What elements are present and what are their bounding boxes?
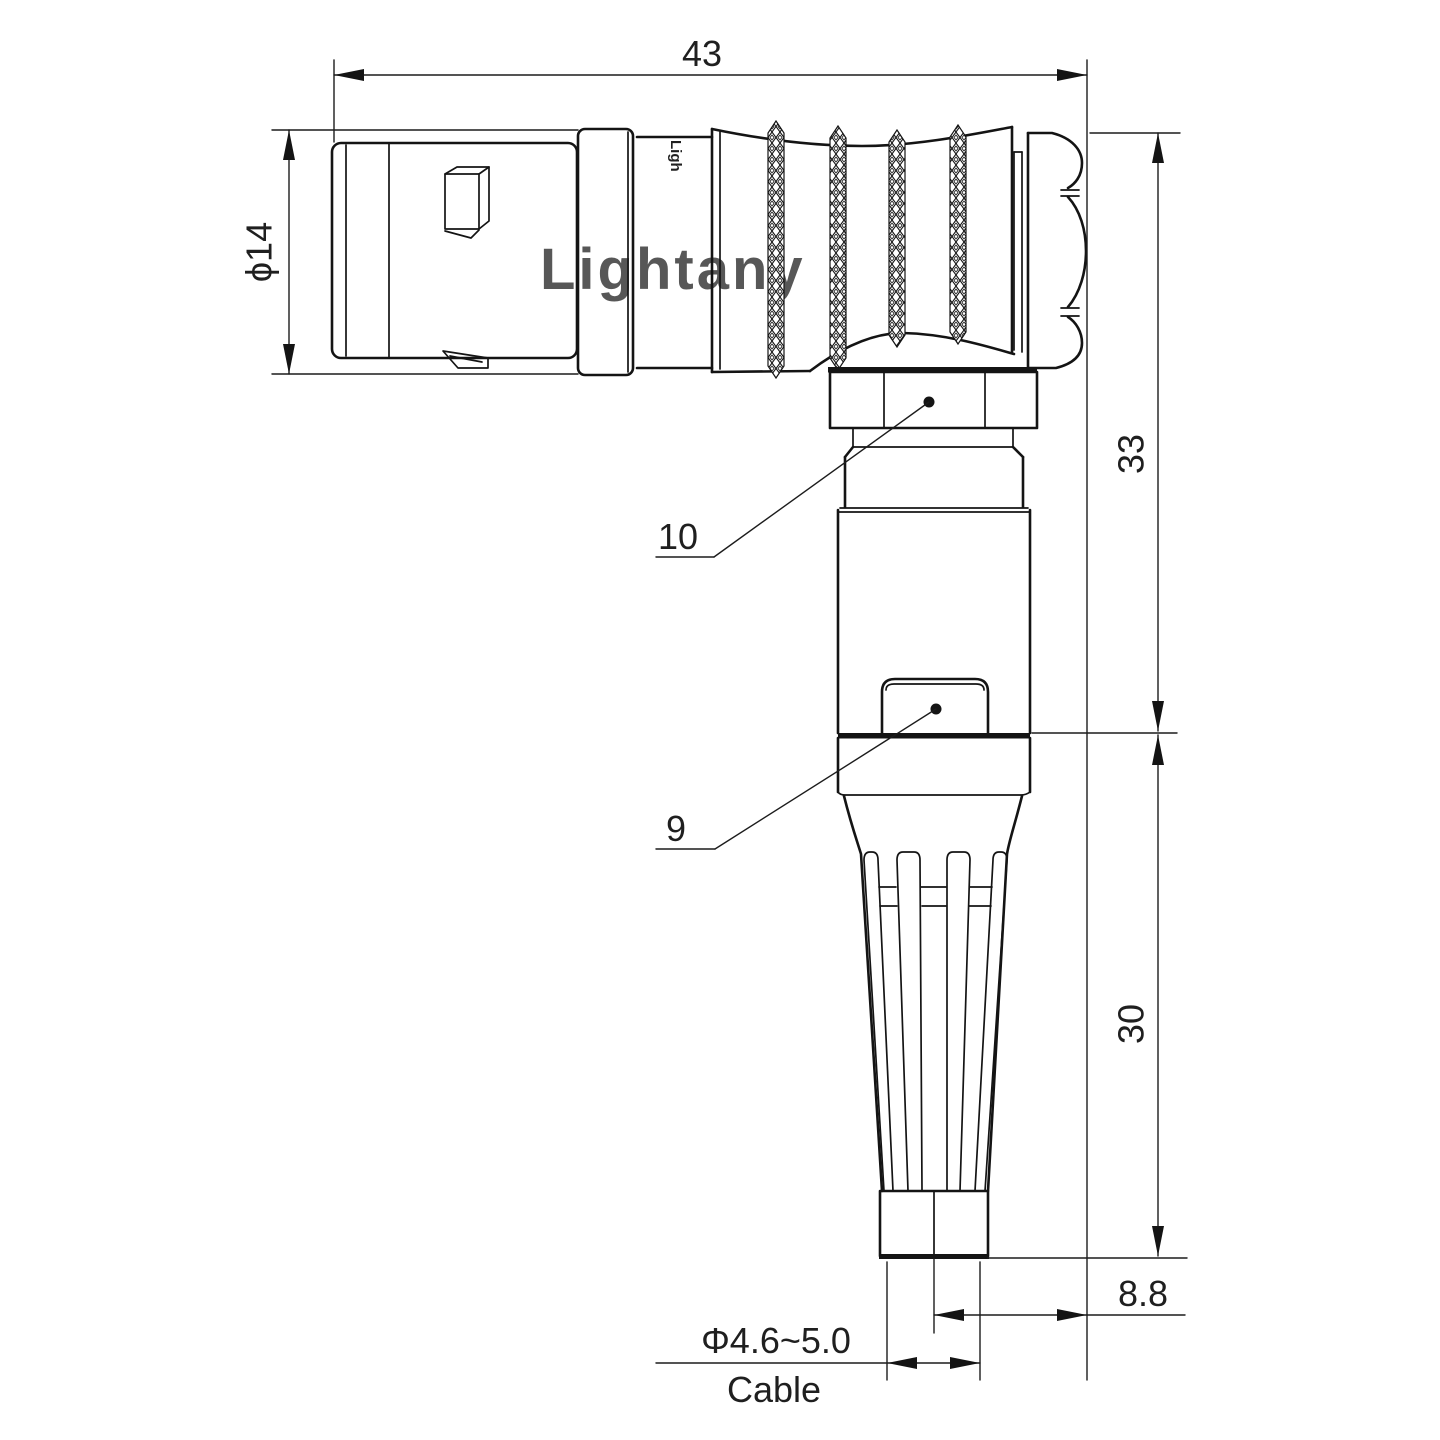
dim-flange-diameter-text: ϕ14 [239, 222, 280, 282]
dim-lower-height-text: 30 [1111, 1004, 1152, 1044]
callout-9-text: 9 [666, 808, 686, 849]
connector-cable-end [879, 1191, 989, 1380]
watermark: Lightany [540, 237, 806, 302]
dimension-cable-diameter: Φ4.6~5.0 Cable [656, 1320, 980, 1410]
plug-keying-tab [445, 167, 489, 238]
connector-hex-nut [828, 367, 1037, 428]
dim-overall-length-text: 43 [682, 33, 722, 74]
connector-strain-relief [844, 796, 1022, 1191]
dimension-upper-section-height: 33 [1032, 133, 1180, 733]
dim-cable-offset-text: 8.8 [1118, 1273, 1168, 1314]
dim-cable-word-text: Cable [727, 1369, 821, 1410]
connector-back-nut [1028, 133, 1086, 368]
connector-body [838, 508, 1030, 795]
dim-cable-diameter-text: Φ4.6~5.0 [701, 1320, 851, 1361]
dimension-cable-offset: 8.8 [934, 1273, 1185, 1321]
technical-drawing-canvas: Lightany Ligh [0, 0, 1440, 1440]
drawing-page: Lightany Ligh [0, 0, 1440, 1440]
callout-release-latch: 9 [656, 704, 942, 850]
callout-coupling-nut: 10 [656, 397, 935, 558]
dimension-flange-diameter: ϕ14 [239, 130, 578, 374]
dim-upper-height-text: 33 [1111, 434, 1152, 474]
brand-mark: Ligh [667, 140, 684, 172]
dimension-overall-length: 43 [334, 33, 1087, 1380]
watermark-text: Lightany [540, 237, 806, 302]
plug-bottom-wedge [443, 351, 488, 368]
connector-washer [845, 428, 1023, 507]
callout-10-text: 10 [658, 516, 698, 557]
